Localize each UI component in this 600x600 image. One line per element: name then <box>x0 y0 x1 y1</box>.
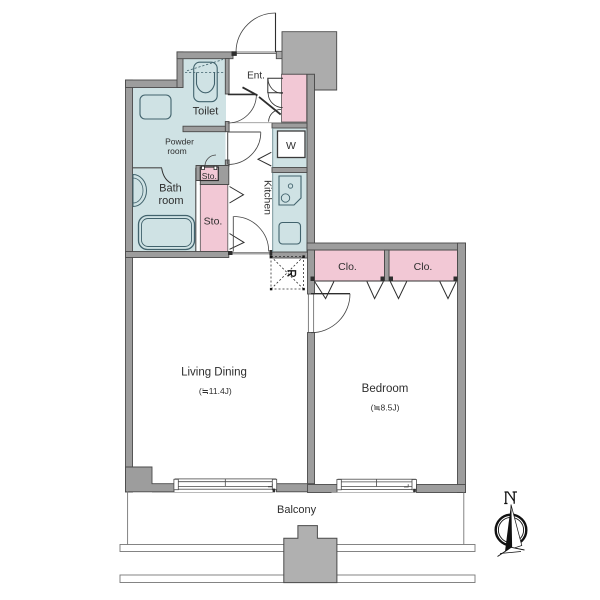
svg-text:Toilet: Toilet <box>193 106 219 118</box>
svg-text:room: room <box>158 195 183 207</box>
svg-text:Sto.: Sto. <box>204 216 223 228</box>
svg-text:(≒11.4J): (≒11.4J) <box>199 386 232 396</box>
svg-text:(≒8.5J): (≒8.5J) <box>371 403 400 413</box>
svg-text:W: W <box>286 140 296 152</box>
svg-text:room: room <box>167 146 186 156</box>
svg-text:Living Dining: Living Dining <box>181 367 247 379</box>
svg-text:Bedroom: Bedroom <box>362 383 409 395</box>
svg-text:Bath: Bath <box>159 183 182 195</box>
svg-text:Kitchen: Kitchen <box>262 180 274 215</box>
svg-text:Clo.: Clo. <box>338 261 357 273</box>
svg-text:Balcony: Balcony <box>277 504 317 516</box>
svg-text:Clo.: Clo. <box>414 261 433 273</box>
svg-text:Sto.: Sto. <box>202 171 217 181</box>
svg-text:Powder: Powder <box>165 137 194 147</box>
svg-text:Ent.: Ent. <box>247 71 265 82</box>
